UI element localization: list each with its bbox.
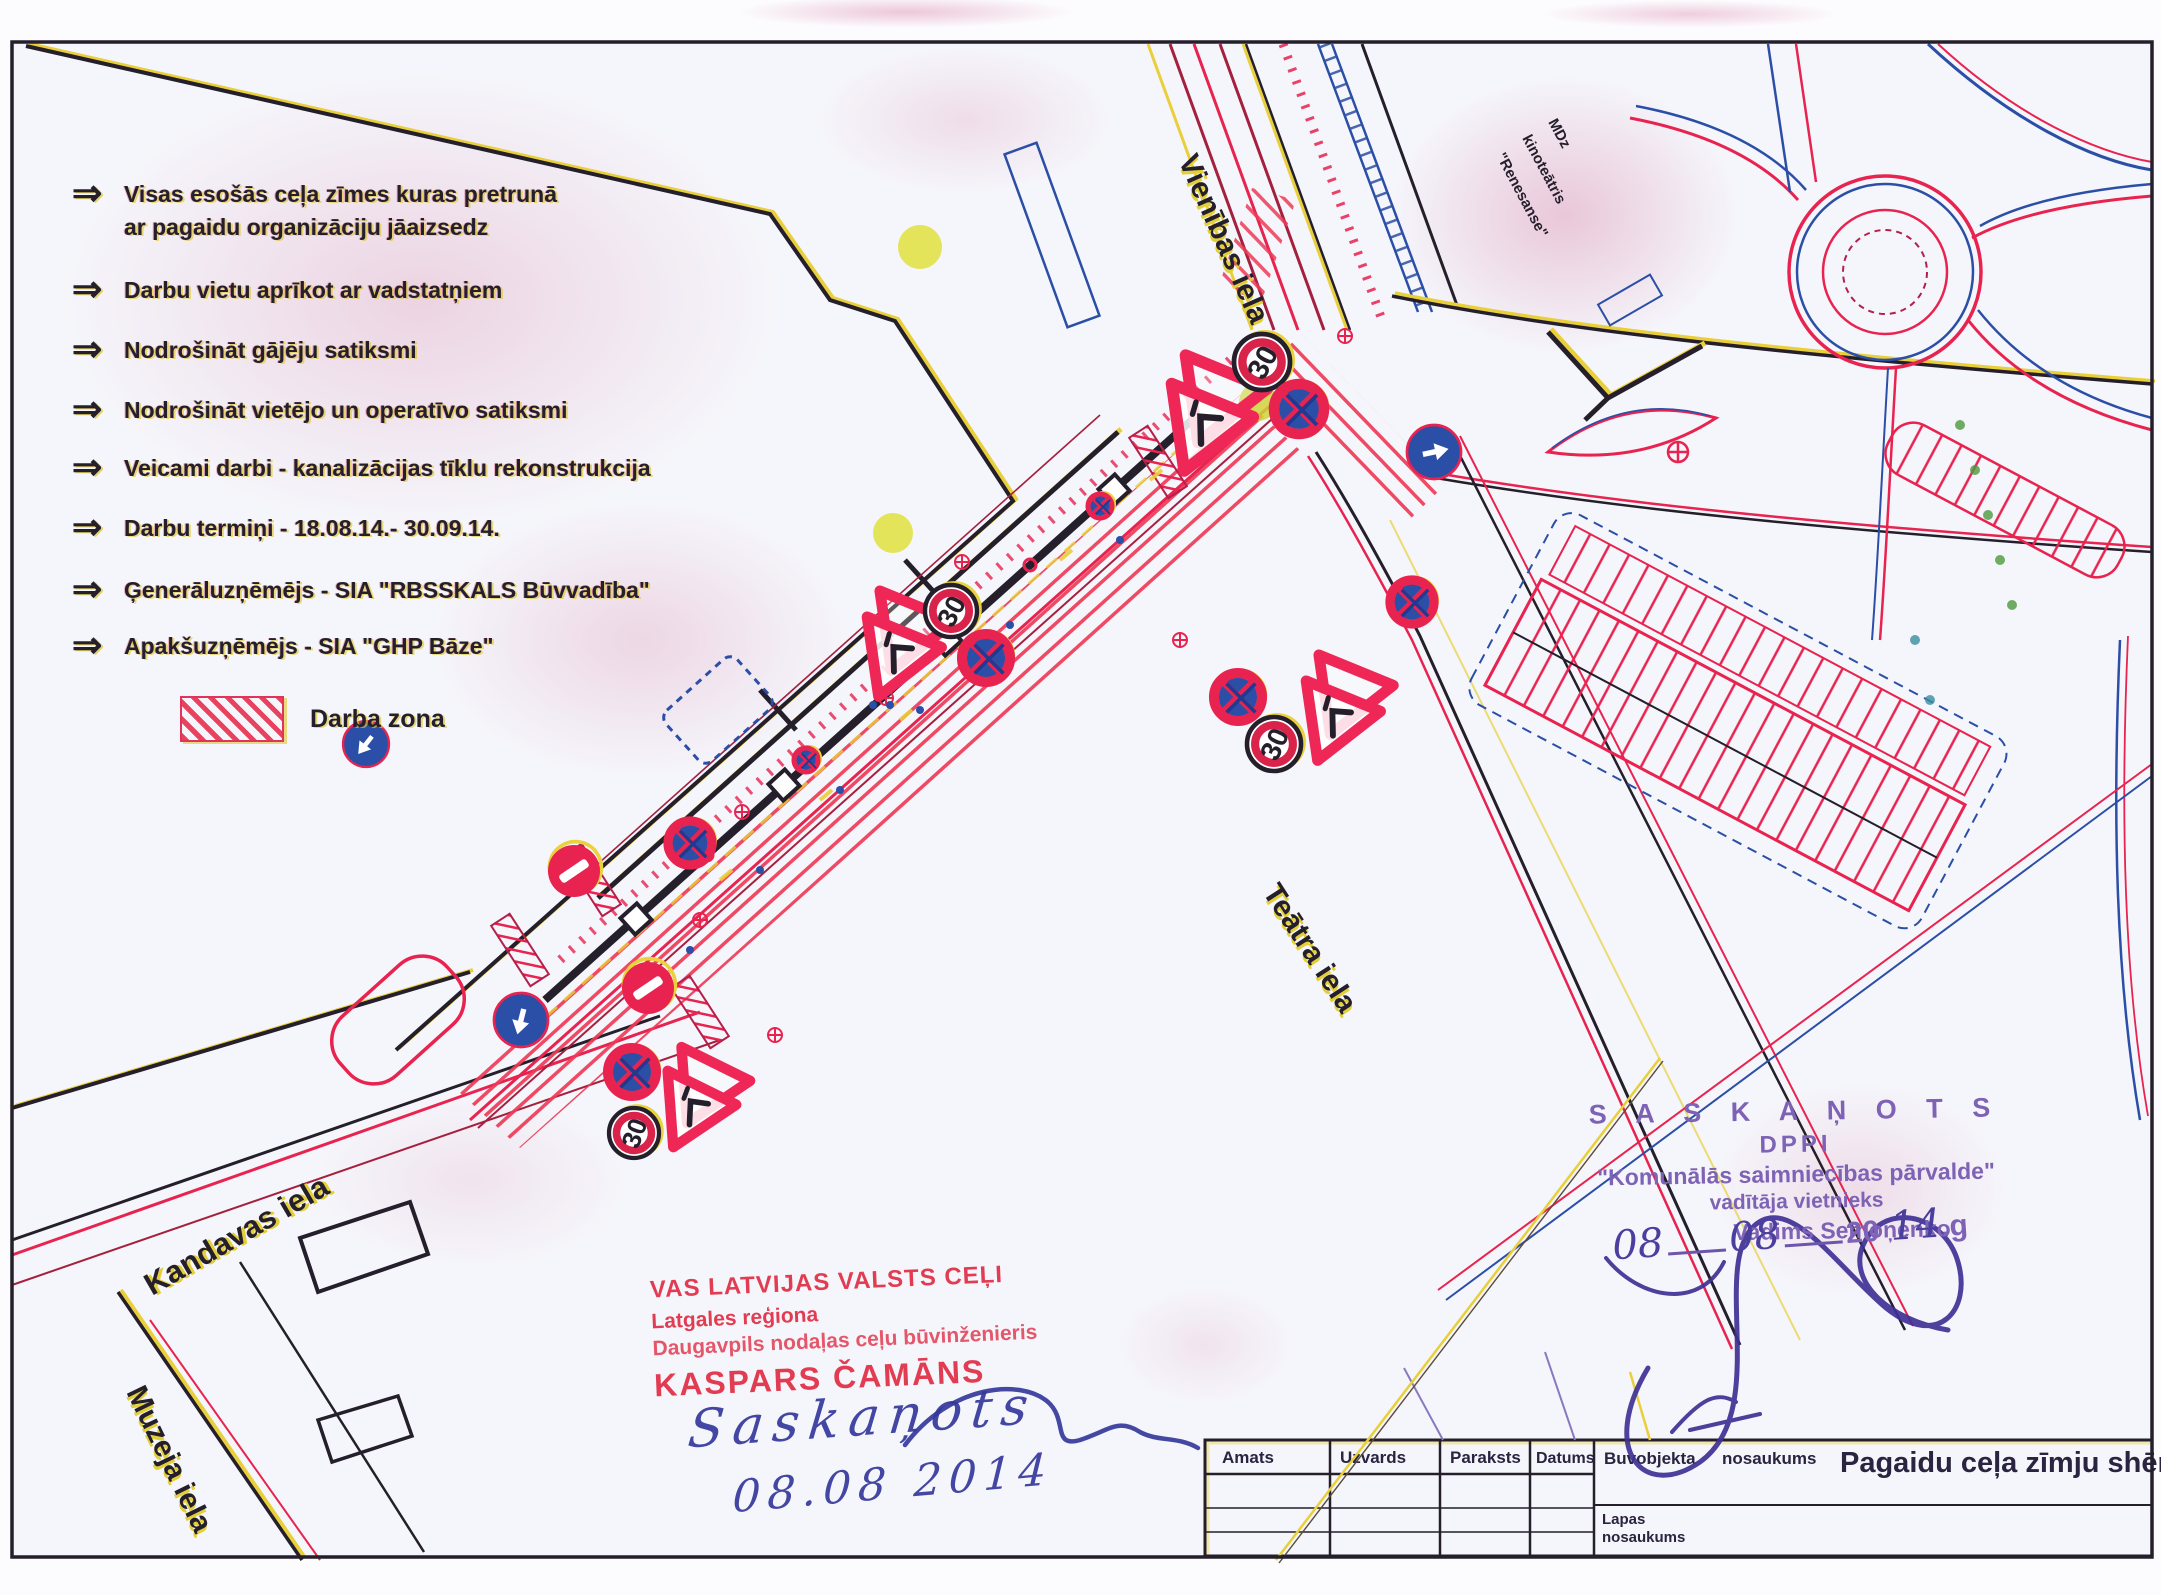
note-row: ⇒ Apakšuzņēmējs - SIA "GHP Bāze" [72, 630, 493, 663]
note-text: ar pagaidu organizāciju jāaizsedz [124, 214, 488, 240]
manhole-mark [1668, 442, 1688, 462]
printed-year-prefix: 20 [1845, 1215, 1881, 1250]
svg-text:Buvobjekta: Buvobjekta [1604, 1449, 1696, 1468]
double-arrow-icon: ⇒ [72, 274, 124, 304]
speed30-sign: 30 [1234, 332, 1293, 390]
svg-text:Paraksts: Paraksts [1450, 1448, 1521, 1467]
note-row: ⇒ Darbu vietu aprīkot ar vadstatņiem [72, 274, 502, 307]
double-arrow-icon: ⇒ [72, 178, 124, 208]
note-text: Darbu vietu aprīkot ar vadstatņiem [124, 277, 502, 303]
scanned-drawing-page: Vienības iela Vienības iela Teātra iela … [0, 0, 2161, 1595]
note-text: Visas esošās ceļa zīmes kuras pretrunā [124, 181, 557, 207]
legend-label: Darba zona [310, 705, 445, 734]
note-row: ⇒ Ģenerāluzņēmējs - SIA "RBSSKALS Būvvad… [72, 574, 650, 607]
no-stop-sign [962, 632, 1013, 682]
note-text: Apakšuzņēmējs - SIA "GHP Bāze" [124, 633, 493, 659]
blue-arrow-sign [494, 993, 548, 1047]
double-arrow-icon: ⇒ [72, 512, 124, 542]
double-arrow-icon: ⇒ [72, 574, 124, 604]
speed30-sign: 30 [609, 1106, 662, 1158]
work-zone-swatch [180, 696, 284, 742]
blue-arrow-sign [1407, 425, 1461, 479]
no-stop-sign [1390, 578, 1437, 624]
note-row: ⇒ Nodrošināt gājēju satiksmi [72, 334, 417, 367]
svg-text:nosaukums: nosaukums [1602, 1529, 1685, 1546]
note-row: ⇒ Nodrošināt vietējo un operatīvo satiks… [72, 394, 568, 427]
svg-text:Amats: Amats [1222, 1448, 1274, 1467]
double-arrow-icon: ⇒ [72, 334, 124, 364]
note-text: Nodrošināt vietējo un operatīvo satiksmi [124, 397, 568, 423]
printed-suffix: .g [1940, 1209, 1969, 1244]
no-stop-sign [1088, 492, 1115, 518]
note-text: Ģenerāluzņēmējs - SIA "RBSSKALS Būvvadīb… [124, 577, 650, 603]
speed30-sign: 30 [1247, 715, 1304, 771]
note-text: Veicami darbi - kanalizācijas tīklu reko… [124, 455, 651, 481]
note-row: ⇒ Visas esošās ceļa zīmes kuras pretrunā… [72, 178, 557, 244]
note-row: ⇒ Darbu termiņi - 18.08.14.- 30.09.14. [72, 512, 500, 545]
note-text: Nodrošināt gājēju satiksmi [124, 337, 417, 363]
handwritten-month: 08 [1727, 1212, 1781, 1261]
no-stop-sign [668, 819, 715, 865]
speed30-sign: 30 [925, 583, 980, 637]
no-stop-sign [1274, 382, 1327, 434]
double-arrow-icon: ⇒ [72, 394, 124, 424]
note-text: Darbu termiņi - 18.08.14.- 30.09.14. [124, 515, 500, 541]
svg-text:Lapas: Lapas [1602, 1511, 1645, 1528]
no-stop-sign [794, 746, 821, 772]
double-arrow-icon: ⇒ [72, 630, 124, 660]
no-stop-sign [608, 1046, 659, 1096]
svg-text:nosaukums: nosaukums [1722, 1449, 1816, 1468]
handwritten-year: 14 [1888, 1201, 1942, 1250]
svg-text:Pagaidu ceļa zīmju shēma.: Pagaidu ceļa zīmju shēma. [1840, 1447, 2161, 1479]
svg-text:Datums: Datums [1536, 1450, 1595, 1467]
no-stop-sign [1214, 671, 1265, 721]
work-zone-legend: Darba zona [180, 696, 445, 742]
handwritten-day: 08 [1611, 1220, 1665, 1269]
note-row: ⇒ Veicami darbi - kanalizācijas tīklu re… [72, 452, 651, 485]
double-arrow-icon: ⇒ [72, 452, 124, 482]
